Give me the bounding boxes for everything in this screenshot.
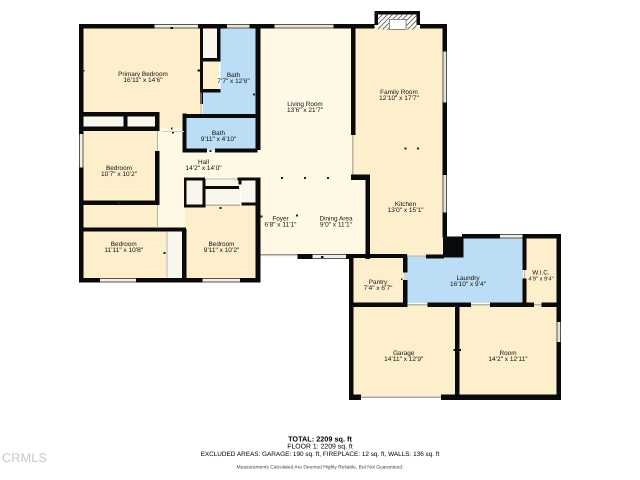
svg-text:4’9" x 9’4": 4’9" x 9’4"	[528, 277, 553, 283]
svg-text:14’2" x 14’0": 14’2" x 14’0"	[185, 165, 222, 172]
svg-text:6’8" x 11’1": 6’8" x 11’1"	[265, 221, 298, 228]
svg-text:9’11" x 4’10": 9’11" x 4’10"	[201, 136, 237, 143]
svg-text:13’6" x 21’7": 13’6" x 21’7"	[287, 107, 324, 114]
svg-text:11’11" x 10’8": 11’11" x 10’8"	[104, 247, 143, 254]
svg-text:14’11" x 12’9": 14’11" x 12’9"	[384, 356, 424, 363]
svg-text:16’10" x 9’4": 16’10" x 9’4"	[450, 281, 487, 288]
svg-text:FLOOR 1: 2209 sq. ft: FLOOR 1: 2209 sq. ft	[287, 443, 353, 450]
svg-text:7’4" x 6’7": 7’4" x 6’7"	[364, 285, 394, 292]
svg-text:TOTAL: 2209 sq. ft: TOTAL: 2209 sq. ft	[288, 434, 352, 443]
svg-text:W.I.C.: W.I.C.	[532, 270, 550, 277]
svg-text:9’0" x 11’1": 9’0" x 11’1"	[320, 221, 353, 228]
svg-text:10’7" x 10’2": 10’7" x 10’2"	[101, 171, 138, 178]
svg-text:7’7" x 12’6": 7’7" x 12’6"	[217, 78, 250, 85]
svg-text:EXCLUDED AREAS: GARAGE: 190 sq: EXCLUDED AREAS: GARAGE: 190 sq. ft, FIRE…	[201, 451, 440, 458]
svg-text:13’0" x 15’1": 13’0" x 15’1"	[387, 207, 424, 214]
svg-text:CRMLS: CRMLS	[2, 451, 47, 465]
svg-text:12’10" x 17’7": 12’10" x 17’7"	[379, 95, 419, 102]
svg-text:16’11" x 14’6": 16’11" x 14’6"	[123, 77, 163, 84]
svg-text:9’11" x 10’2": 9’11" x 10’2"	[204, 247, 240, 254]
svg-text:14’2" x 12’11": 14’2" x 12’11"	[488, 356, 528, 363]
svg-text:Measurements Calculated Are De: Measurements Calculated Are Deemed Highl…	[237, 465, 404, 471]
